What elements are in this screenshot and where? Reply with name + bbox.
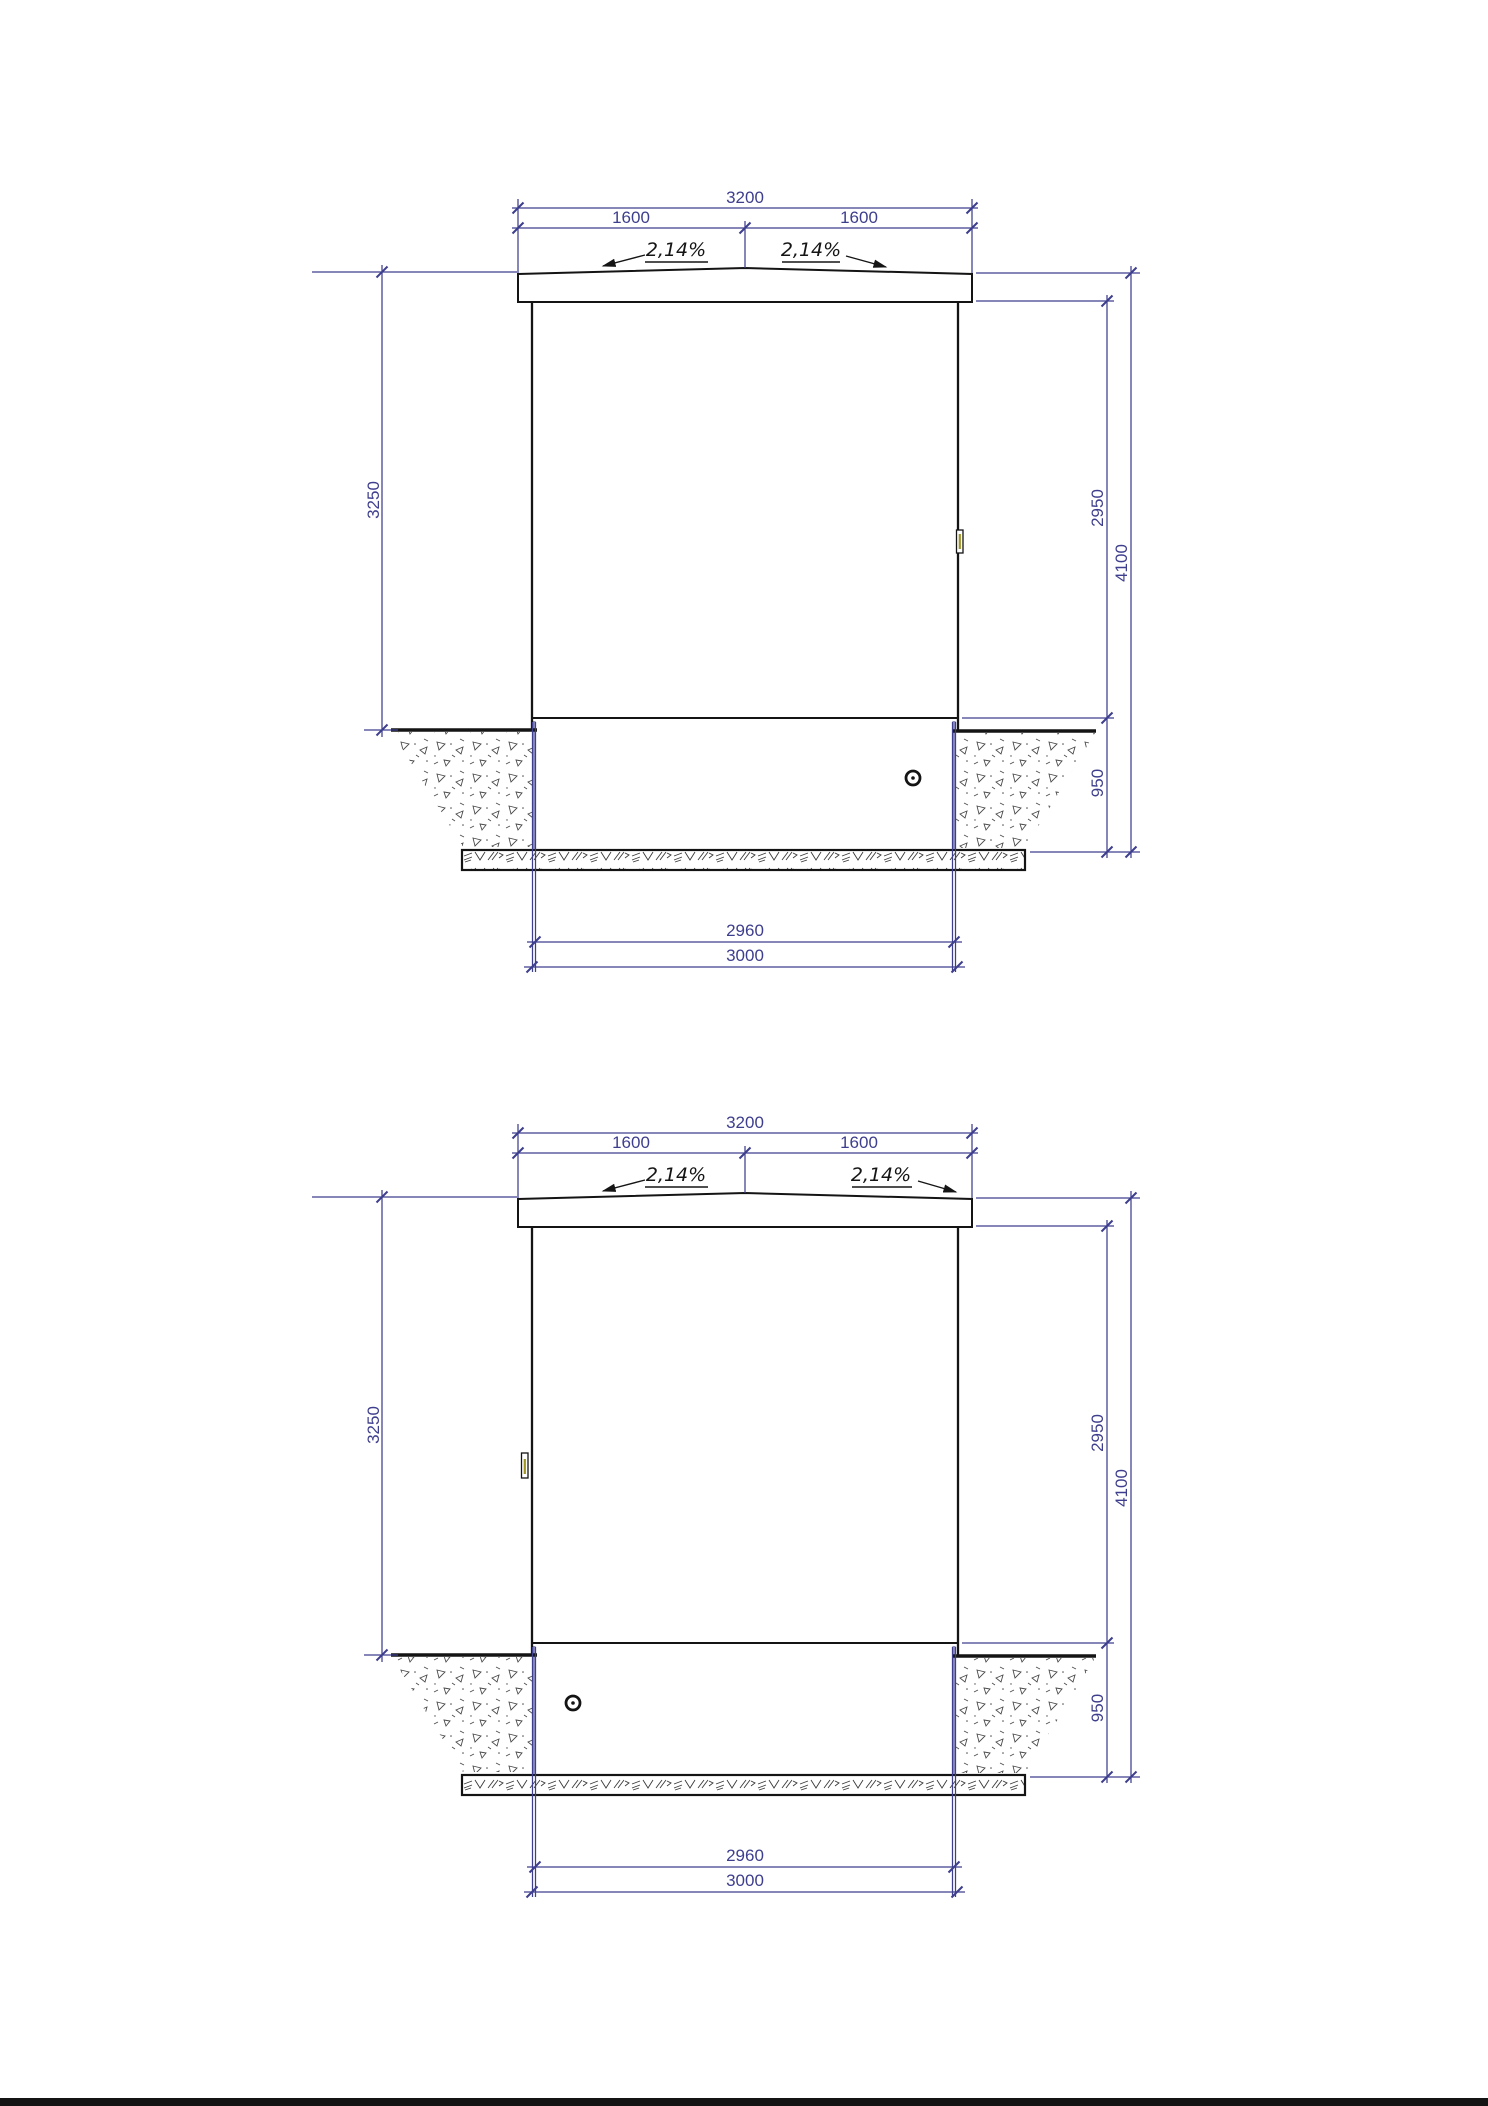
roof-slab — [518, 1193, 972, 1227]
sheet-bottom-edge-bar — [0, 2098, 1488, 2106]
slope-label-left: 2,14% — [646, 239, 706, 261]
slope-label-left: 2,14% — [646, 1164, 706, 1186]
dim-wall-height-right: 2950 — [1088, 489, 1107, 527]
foundation-slab — [462, 850, 1025, 870]
slope-annotation-right: 2,14% — [781, 239, 886, 267]
dim-wall-height-right: 2950 — [1088, 1414, 1107, 1452]
ground-symbol-icon — [566, 1696, 580, 1710]
soil-hatch-left — [392, 732, 534, 847]
soil-hatch-left — [392, 1657, 534, 1772]
slope-label-right: 2,14% — [781, 239, 841, 261]
dim-roof-half-right: 1600 — [840, 208, 878, 227]
dim-roof-total: 3200 — [726, 188, 764, 207]
drawing-sheet: 2,14% 2,14% 3200 1600 1600 3250 2950 410… — [0, 0, 1488, 2106]
dim-width-inner: 2960 — [726, 921, 764, 940]
soil-hatch-right — [955, 1658, 1095, 1773]
dim-overall-height: 4100 — [1112, 544, 1131, 582]
dim-foundation-depth: 950 — [1088, 769, 1107, 797]
dim-width-base: 3000 — [726, 946, 764, 965]
foundation-slab — [462, 1775, 1025, 1795]
slope-annotation-left: 2,14% — [603, 239, 708, 266]
dim-height-left: 3250 — [364, 481, 383, 519]
door-handle — [522, 1453, 529, 1478]
slope-label-right: 2,14% — [851, 1164, 911, 1186]
dim-width-base: 3000 — [726, 1871, 764, 1890]
drawing-top: 2,14% 2,14% 3200 1600 1600 3250 2950 410… — [312, 188, 1140, 973]
technical-drawing-canvas: 2,14% 2,14% 3200 1600 1600 3250 2950 410… — [0, 0, 1488, 2106]
dim-overall-height: 4100 — [1112, 1469, 1131, 1507]
ground-symbol-icon — [906, 771, 920, 785]
dim-roof-total: 3200 — [726, 1113, 764, 1132]
soil-hatch-right — [955, 733, 1095, 848]
slope-annotation-right: 2,14% — [851, 1164, 956, 1192]
dim-roof-half-right: 1600 — [840, 1133, 878, 1152]
building-outline — [391, 268, 1096, 731]
door-handle — [957, 530, 964, 553]
dim-roof-half-left: 1600 — [612, 1133, 650, 1152]
dim-width-inner: 2960 — [726, 1846, 764, 1865]
dim-foundation-depth: 950 — [1088, 1694, 1107, 1722]
roof-slab — [518, 268, 972, 302]
drawing-bottom: 2,14% 2,14% 3200 1600 1600 3250 2950 410… — [312, 1113, 1140, 1898]
building-outline — [391, 1193, 1096, 1656]
dim-height-left: 3250 — [364, 1406, 383, 1444]
slope-annotation-left: 2,14% — [603, 1164, 708, 1191]
dim-roof-half-left: 1600 — [612, 208, 650, 227]
